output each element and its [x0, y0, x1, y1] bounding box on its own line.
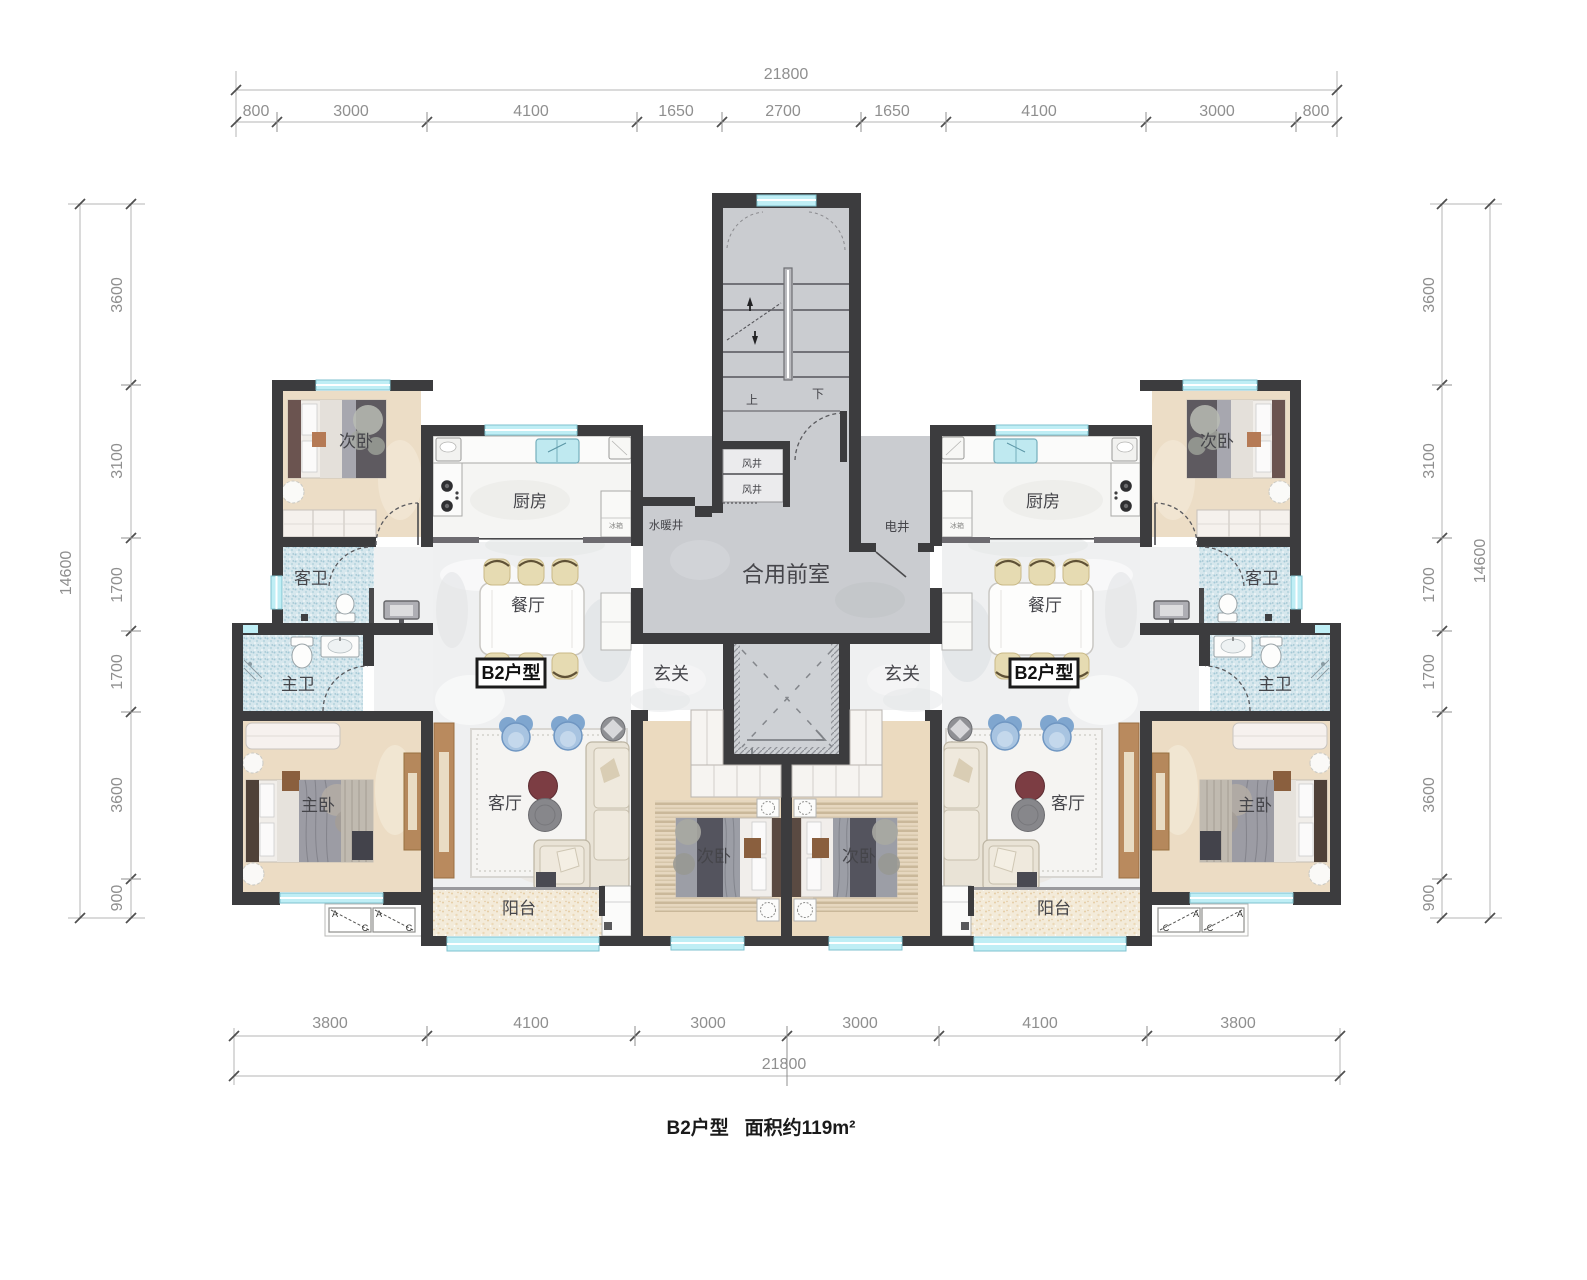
svg-text:厨房: 厨房	[513, 492, 547, 511]
svg-text:4100: 4100	[1021, 103, 1057, 120]
svg-text:主卧: 主卧	[1238, 796, 1272, 815]
svg-text:800: 800	[243, 103, 270, 120]
svg-text:A: A	[1237, 909, 1243, 919]
svg-text:冰箱: 冰箱	[609, 521, 623, 530]
svg-text:3000: 3000	[842, 1015, 878, 1032]
svg-text:21800: 21800	[762, 1056, 807, 1073]
svg-text:B2户型 面积约119m²: B2户型 面积约119m²	[667, 1116, 856, 1139]
svg-text:900: 900	[109, 885, 126, 912]
svg-text:3800: 3800	[1220, 1015, 1256, 1032]
svg-text:4100: 4100	[513, 103, 549, 120]
svg-text:14600: 14600	[1472, 539, 1489, 584]
svg-text:3600: 3600	[109, 277, 126, 313]
svg-text:C: C	[1207, 923, 1214, 933]
svg-text:3600: 3600	[1421, 777, 1438, 813]
svg-text:客卫: 客卫	[1245, 569, 1279, 588]
svg-text:玄关: 玄关	[884, 664, 920, 684]
svg-text:3600: 3600	[109, 777, 126, 813]
svg-text:4100: 4100	[513, 1015, 549, 1032]
svg-text:3000: 3000	[333, 103, 369, 120]
svg-text:下: 下	[812, 387, 824, 401]
svg-text:C: C	[1163, 923, 1170, 933]
svg-text:餐厅: 餐厅	[511, 596, 545, 615]
svg-text:C: C	[406, 923, 413, 933]
svg-text:冰箱: 冰箱	[950, 521, 964, 530]
svg-text:1700: 1700	[109, 567, 126, 603]
svg-text:次卧: 次卧	[697, 847, 731, 866]
svg-text:B2户型: B2户型	[481, 662, 540, 683]
svg-text:C: C	[362, 923, 369, 933]
svg-text:客厅: 客厅	[488, 794, 522, 813]
svg-text:主卫: 主卫	[281, 675, 315, 694]
svg-text:阳台: 阳台	[1037, 899, 1071, 918]
svg-text:1700: 1700	[1421, 654, 1438, 690]
svg-text:阳台: 阳台	[502, 899, 536, 918]
svg-text:A: A	[332, 909, 338, 919]
svg-text:客厅: 客厅	[1051, 794, 1085, 813]
svg-text:3000: 3000	[690, 1015, 726, 1032]
svg-text:4100: 4100	[1022, 1015, 1058, 1032]
svg-text:1650: 1650	[874, 103, 910, 120]
svg-text:1700: 1700	[1421, 567, 1438, 603]
svg-text:900: 900	[1421, 885, 1438, 912]
svg-text:水暖井: 水暖井	[649, 518, 684, 532]
svg-text:14600: 14600	[58, 551, 75, 596]
svg-text:次卧: 次卧	[339, 432, 373, 451]
svg-text:A: A	[376, 909, 382, 919]
svg-text:餐厅: 餐厅	[1028, 596, 1062, 615]
svg-text:电井: 电井	[884, 520, 909, 534]
svg-text:厨房: 厨房	[1026, 492, 1060, 511]
svg-text:合用前室: 合用前室	[742, 562, 830, 587]
svg-text:主卧: 主卧	[301, 796, 335, 815]
svg-text:上: 上	[746, 393, 758, 407]
svg-text:客卫: 客卫	[294, 569, 328, 588]
svg-text:21800: 21800	[764, 66, 809, 83]
svg-text:3000: 3000	[1199, 103, 1235, 120]
svg-text:A: A	[1193, 909, 1199, 919]
svg-text:1700: 1700	[109, 654, 126, 690]
svg-text:次卧: 次卧	[842, 847, 876, 866]
svg-text:风井: 风井	[742, 483, 762, 496]
svg-text:3600: 3600	[1421, 277, 1438, 313]
svg-text:玄关: 玄关	[653, 664, 689, 684]
svg-text:1650: 1650	[658, 103, 694, 120]
svg-text:3100: 3100	[1421, 443, 1438, 479]
svg-text:3100: 3100	[109, 443, 126, 479]
svg-text:B2户型: B2户型	[1014, 662, 1073, 683]
svg-text:3800: 3800	[312, 1015, 348, 1032]
svg-text:2700: 2700	[765, 103, 801, 120]
svg-text:800: 800	[1303, 103, 1330, 120]
svg-text:风井: 风井	[742, 457, 762, 470]
svg-text:主卫: 主卫	[1258, 675, 1292, 694]
svg-text:次卧: 次卧	[1200, 432, 1234, 451]
